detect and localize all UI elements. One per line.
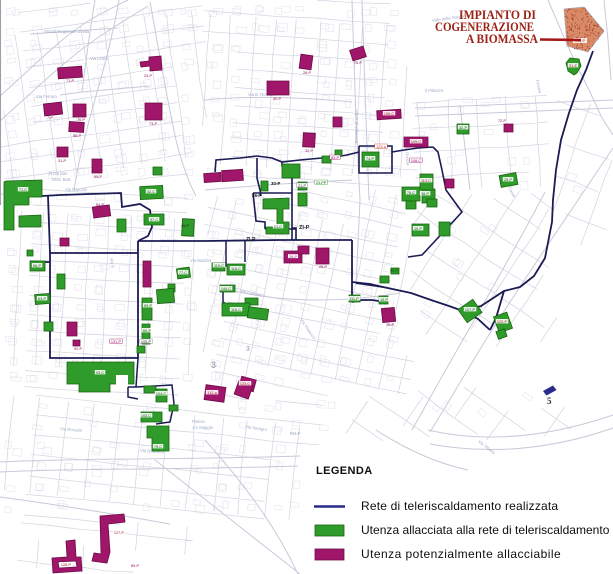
- svg-text:40-P: 40-P: [273, 97, 281, 101]
- svg-text:77-C: 77-C: [179, 271, 187, 275]
- svg-text:93-C: 93-C: [96, 371, 104, 375]
- svg-text:112-a: 112-a: [207, 391, 217, 395]
- svg-text:Giov. Batt.: Giov. Batt.: [52, 177, 71, 182]
- svg-text:15-P: 15-P: [380, 298, 388, 302]
- svg-text:107-P: 107-P: [465, 308, 476, 312]
- svg-text:76-C: 76-C: [407, 191, 415, 195]
- svg-text:118-C: 118-C: [231, 267, 241, 271]
- svg-text:128-P: 128-P: [61, 563, 72, 567]
- svg-text:108-C: 108-C: [411, 159, 422, 163]
- svg-text:Via P. di Villanova: Via P. di Villanova: [354, 110, 359, 144]
- svg-text:45-P: 45-P: [181, 224, 189, 228]
- svg-text:Via Mazzini: Via Mazzini: [190, 258, 211, 263]
- svg-text:113-C: 113-C: [421, 179, 431, 183]
- svg-text:Via G.: Via G.: [109, 257, 116, 269]
- svg-text:Utenza potenzialmente allaccia: Utenza potenzialmente allacciabile: [361, 547, 561, 561]
- svg-text:59-P: 59-P: [144, 304, 152, 308]
- svg-text:Piazza: Piazza: [192, 419, 205, 424]
- svg-text:Rete di teleriscaldamento real: Rete di teleriscaldamento realizzata: [361, 499, 558, 513]
- svg-text:83-P: 83-P: [331, 156, 339, 160]
- svg-text:Ferrara: Ferrara: [535, 79, 543, 94]
- svg-text:30-P: 30-P: [271, 181, 280, 186]
- svg-text:123-C: 123-C: [240, 382, 251, 386]
- svg-text:70-P: 70-P: [77, 118, 85, 122]
- svg-text:73-P: 73-P: [149, 122, 157, 126]
- svg-text:Via Seragni: Via Seragni: [245, 424, 267, 432]
- svg-text:72-P: 72-P: [498, 119, 506, 123]
- svg-text:Via Marconi: Via Marconi: [65, 187, 87, 192]
- svg-text:Via Vittoria: Via Vittoria: [477, 439, 496, 456]
- svg-text:60-P: 60-P: [143, 329, 151, 333]
- svg-text:89-P: 89-P: [131, 564, 139, 568]
- svg-text:127-P: 127-P: [114, 531, 125, 535]
- svg-text:26-P: 26-P: [252, 193, 261, 198]
- svg-text:116-C: 116-C: [231, 308, 241, 312]
- svg-text:26-P: 26-P: [319, 265, 327, 269]
- svg-text:Via Gorizia: Via Gorizia: [404, 145, 411, 166]
- svg-text:23-PP: 23-PP: [316, 181, 327, 185]
- svg-text:55-P: 55-P: [94, 175, 102, 179]
- svg-text:7-P: 7-P: [47, 116, 53, 120]
- svg-text:79-C: 79-C: [154, 445, 162, 449]
- svg-text:3: 3: [211, 360, 216, 370]
- svg-text:Il Palazzo: Il Palazzo: [425, 88, 444, 93]
- svg-text:144-C: 144-C: [221, 287, 232, 291]
- svg-text:23-P: 23-P: [144, 74, 152, 78]
- svg-text:90-P: 90-P: [390, 269, 398, 273]
- svg-text:120-P: 120-P: [497, 320, 508, 324]
- svg-text:56-P: 56-P: [73, 134, 81, 138]
- svg-text:71-P: 71-P: [66, 79, 74, 83]
- svg-text:25-P: 25-P: [504, 178, 512, 182]
- svg-text:LEGENDA: LEGENDA: [316, 465, 373, 477]
- svg-text:105-P: 105-P: [141, 340, 152, 344]
- svg-text:10-P: 10-P: [414, 227, 422, 231]
- svg-text:1-e Maggio: 1-e Maggio: [192, 425, 214, 430]
- svg-text:66-P: 66-P: [33, 264, 41, 268]
- svg-text:123-a: 123-a: [376, 145, 387, 149]
- svg-text:21-C: 21-C: [274, 225, 282, 229]
- svg-text:111-P: 111-P: [349, 297, 359, 301]
- svg-text:ZI-P: ZI-P: [299, 225, 310, 231]
- svg-text:Via Lirtea: Via Lirtea: [90, 56, 108, 61]
- svg-text:P.zza San: P.zza San: [49, 171, 68, 176]
- svg-text:28-P: 28-P: [303, 71, 311, 75]
- svg-text:104-C: 104-C: [156, 392, 167, 396]
- svg-text:Strada Regionale Emilia: Strada Regionale Emilia: [44, 29, 90, 34]
- svg-text:A BIOMASSA: A BIOMASSA: [466, 32, 538, 46]
- svg-text:Via Cattane: Via Cattane: [240, 288, 263, 298]
- svg-text:75-P: 75-P: [354, 61, 362, 65]
- svg-text:3: 3: [246, 346, 250, 353]
- svg-text:119-C: 119-C: [214, 264, 224, 268]
- svg-text:Via Ferrara: Via Ferrara: [36, 94, 58, 99]
- svg-text:63-P: 63-P: [38, 297, 46, 301]
- svg-text:32-P: 32-P: [305, 149, 313, 153]
- svg-text:71-C: 71-C: [19, 188, 27, 192]
- svg-text:16-P: 16-P: [386, 323, 394, 327]
- svg-text:92-P: 92-P: [74, 347, 82, 351]
- svg-text:RO-P: RO-P: [290, 431, 301, 436]
- svg-text:106-C: 106-C: [384, 112, 395, 116]
- svg-text:Utenza allacciata alla rete di: Utenza allacciata alla rete di telerisca…: [361, 523, 610, 537]
- svg-text:21-P: 21-P: [298, 184, 306, 188]
- svg-text:36-P: 36-P: [421, 192, 429, 196]
- svg-text:5: 5: [547, 396, 552, 406]
- svg-text:51-E: 51-E: [569, 64, 577, 68]
- svg-text:109-C: 109-C: [411, 140, 422, 144]
- svg-text:103-C: 103-C: [141, 414, 152, 418]
- svg-text:32-P: 32-P: [459, 126, 467, 130]
- svg-text:131-P: 131-P: [111, 340, 122, 344]
- svg-text:37-C: 37-C: [150, 218, 158, 222]
- svg-text:31-P: 31-P: [58, 159, 66, 163]
- svg-text:ZI-P: ZI-P: [246, 237, 256, 243]
- svg-text:29-P: 29-P: [289, 255, 297, 259]
- svg-text:Via Rosselli: Via Rosselli: [60, 426, 82, 433]
- svg-text:32-C: 32-C: [147, 190, 155, 194]
- svg-text:74-P: 74-P: [366, 157, 374, 161]
- svg-text:54-P: 54-P: [96, 203, 104, 207]
